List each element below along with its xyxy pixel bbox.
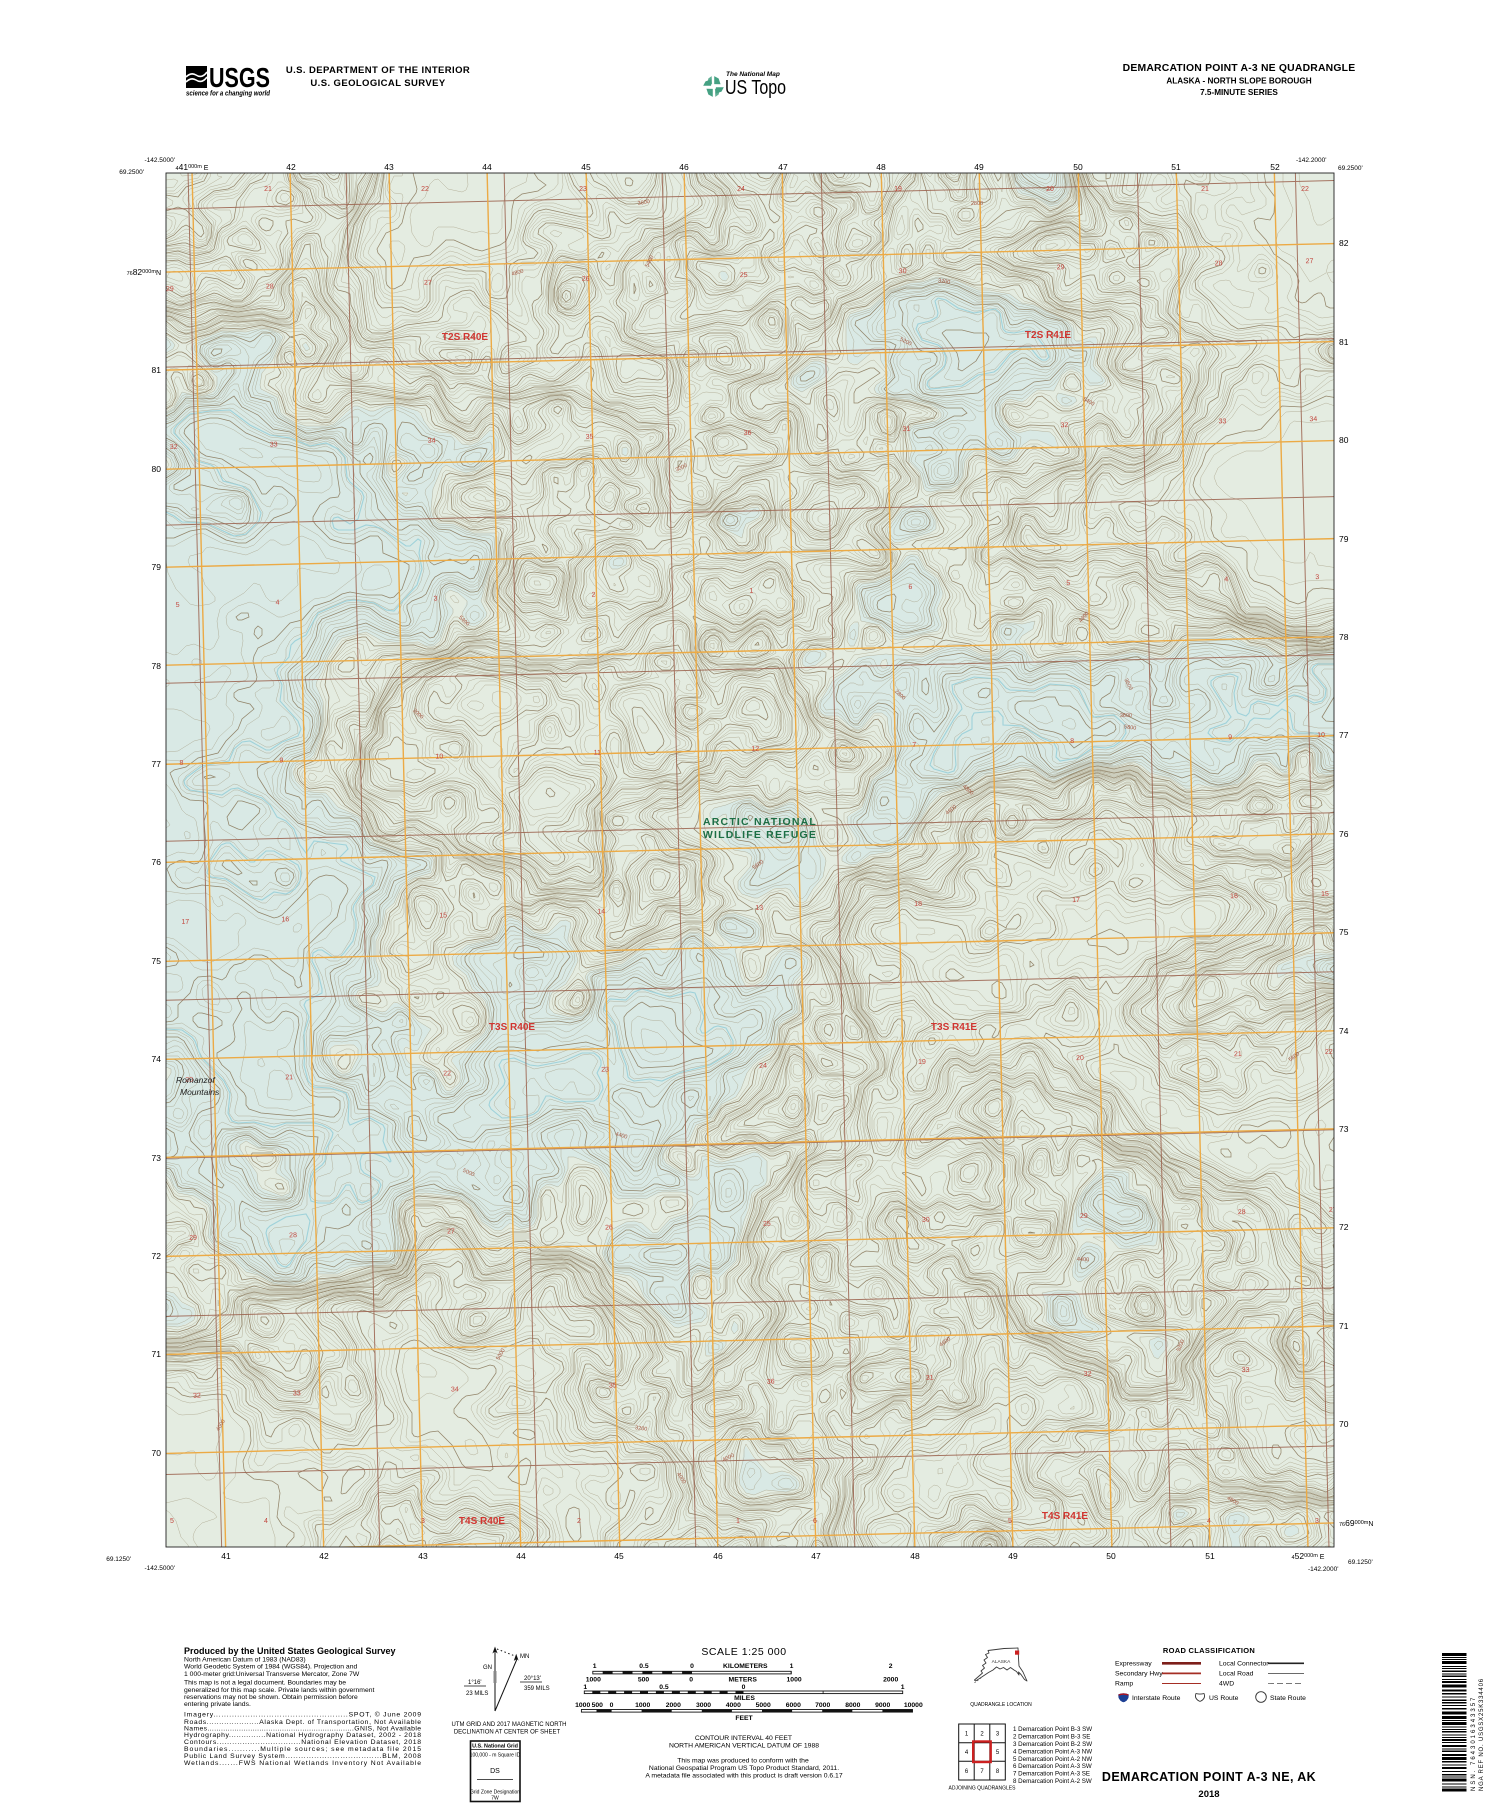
svg-text:3600: 3600 [1120, 713, 1132, 719]
svg-text:1 000-meter grid:Universal Tra: 1 000-meter grid:Universal Transverse Me… [184, 1671, 360, 1678]
svg-text:75: 75 [152, 956, 162, 966]
svg-text:17: 17 [1072, 897, 1080, 904]
svg-text:34: 34 [428, 438, 436, 445]
svg-text:11: 11 [594, 750, 602, 757]
svg-text:69.1250': 69.1250' [1348, 1559, 1373, 1566]
svg-text:77: 77 [152, 759, 162, 769]
svg-text:Expressway: Expressway [1115, 1661, 1152, 1668]
svg-text:34: 34 [451, 1386, 459, 1393]
svg-text:70: 70 [152, 1448, 162, 1458]
svg-text:33: 33 [270, 441, 278, 448]
svg-text:80: 80 [1339, 435, 1349, 445]
svg-text:32: 32 [1084, 1371, 1092, 1378]
svg-text:46: 46 [713, 1551, 723, 1561]
svg-text:6 Demarcation Point A-3 SW: 6 Demarcation Point A-3 SW [1013, 1763, 1092, 1770]
svg-text:Wetlands.......FWS National: Wetlands.......FWS National Wetlands Inv… [184, 1760, 421, 1767]
svg-text:17: 17 [181, 919, 189, 926]
svg-text:2 Demarcation Point B-3 SE: 2 Demarcation Point B-3 SE [1013, 1734, 1090, 1741]
svg-text:0.5: 0.5 [659, 1684, 669, 1691]
svg-text:US Topo: US Topo [725, 76, 786, 99]
svg-text:This map is not a legal docume: This map is not a legal document. Bounda… [184, 1680, 346, 1687]
svg-text:69.1250': 69.1250' [106, 1556, 131, 1563]
svg-text:U.S. DEPARTMENT OF THE INTERIO: U.S. DEPARTMENT OF THE INTERIOR [286, 65, 470, 76]
svg-text:8 Demarcation Point A-2 SW: 8 Demarcation Point A-2 SW [1013, 1778, 1092, 1785]
svg-text:48: 48 [876, 162, 886, 172]
svg-text:1000: 1000 [787, 1677, 802, 1684]
svg-text:22: 22 [1301, 186, 1309, 193]
svg-text:8: 8 [179, 760, 183, 767]
svg-text:33: 33 [1242, 1367, 1250, 1374]
svg-text:5000: 5000 [756, 1702, 771, 1709]
svg-text:44: 44 [482, 162, 492, 172]
svg-text:50: 50 [1106, 1551, 1116, 1561]
svg-text:7: 7 [912, 742, 916, 749]
svg-text:5: 5 [1066, 580, 1070, 587]
svg-text:-142.5000': -142.5000' [144, 157, 175, 164]
svg-text:3: 3 [433, 596, 437, 603]
svg-text:NGA REF NO. USGSX25K334406: NGA REF NO. USGSX25K334406 [1479, 1678, 1485, 1791]
svg-text:29: 29 [166, 286, 174, 293]
svg-text:20°13': 20°13' [524, 1676, 541, 1682]
svg-text:3: 3 [1315, 1518, 1319, 1525]
svg-text:50: 50 [1073, 162, 1083, 172]
svg-text:13: 13 [755, 905, 763, 912]
svg-text:28: 28 [1215, 260, 1223, 267]
svg-text:6: 6 [908, 584, 912, 591]
svg-text:3 Demarcation Point B-2 SW: 3 Demarcation Point B-2 SW [1013, 1741, 1092, 1748]
svg-text:ARCTIC NATIONAL: ARCTIC NATIONAL [703, 816, 817, 828]
svg-text:76: 76 [1339, 829, 1349, 839]
svg-text:72: 72 [152, 1251, 162, 1261]
svg-text:6000: 6000 [786, 1702, 801, 1709]
svg-text:2: 2 [889, 1663, 893, 1670]
svg-text:DS: DS [490, 1768, 500, 1775]
svg-text:31: 31 [903, 426, 911, 433]
svg-text:6: 6 [813, 1518, 817, 1525]
svg-text:T3S R40E: T3S R40E [489, 1022, 535, 1033]
svg-text:This map was produced to confo: This map was produced to conform with th… [677, 1758, 809, 1765]
svg-text:generalized for this map scale: generalized for this map scale. Private … [184, 1687, 375, 1694]
svg-text:1 Demarcation Point B-3 SW: 1 Demarcation Point B-3 SW [1013, 1726, 1092, 1733]
svg-text:34: 34 [1309, 416, 1317, 423]
svg-text:28: 28 [1238, 1209, 1246, 1216]
svg-text:2: 2 [577, 1518, 581, 1525]
svg-text:7 Demarcation Point A-3 SE: 7 Demarcation Point A-3 SE [1013, 1771, 1090, 1778]
svg-text:9: 9 [1228, 734, 1232, 741]
svg-text:science for a changing world: science for a changing world [186, 91, 271, 98]
svg-text:23 MILS: 23 MILS [466, 1691, 488, 1697]
svg-text:43: 43 [418, 1551, 428, 1561]
svg-text:49: 49 [1008, 1551, 1018, 1561]
svg-text:27: 27 [424, 280, 432, 287]
svg-text:74: 74 [152, 1054, 162, 1064]
svg-text:U.S. GEOLOGICAL SURVEY: U.S. GEOLOGICAL SURVEY [310, 78, 445, 89]
svg-text:71: 71 [152, 1349, 162, 1359]
svg-text:4WD: 4WD [1219, 1681, 1234, 1688]
svg-text:73: 73 [152, 1153, 162, 1163]
svg-text:21: 21 [1201, 186, 1209, 193]
svg-text:46: 46 [679, 162, 689, 172]
svg-text:12: 12 [751, 746, 759, 753]
svg-text:2000: 2000 [666, 1702, 681, 1709]
svg-text:21: 21 [264, 186, 272, 193]
svg-text:CONTOUR INTERVAL 40 FEET: CONTOUR INTERVAL 40 FEET [695, 1735, 792, 1742]
svg-text:9: 9 [279, 757, 283, 764]
svg-text:1°16': 1°16' [468, 1680, 482, 1686]
svg-text:Local Connector: Local Connector [1219, 1661, 1269, 1668]
svg-text:1: 1 [736, 1518, 740, 1525]
svg-text:100,000 - m Square ID: 100,000 - m Square ID [470, 1753, 521, 1759]
svg-text:UTM GRID AND 2017 MAGNETIC NOR: UTM GRID AND 2017 MAGNETIC NORTH [452, 1722, 567, 1728]
svg-text:SCALE 1:25 000: SCALE 1:25 000 [701, 1646, 786, 1658]
svg-text:1: 1 [790, 1663, 794, 1670]
svg-text:-142.2000': -142.2000' [1308, 1566, 1339, 1573]
svg-text:2018: 2018 [1198, 1789, 1219, 1800]
svg-text:0.5: 0.5 [639, 1663, 649, 1670]
svg-text:5: 5 [1008, 1518, 1012, 1525]
svg-text:DEMARCATION POINT A-3 NE QUADR: DEMARCATION POINT A-3 NE QUADRANGLE [1123, 63, 1356, 74]
svg-text:1000: 1000 [586, 1677, 601, 1684]
svg-text:2: 2 [591, 592, 595, 599]
svg-text:4: 4 [1224, 576, 1228, 583]
svg-text:20: 20 [1046, 186, 1054, 193]
svg-text:42: 42 [319, 1551, 329, 1561]
svg-text:32: 32 [170, 444, 178, 451]
svg-text:entering private lands.: entering private lands. [184, 1701, 251, 1708]
svg-text:U.S. National Grid: U.S. National Grid [472, 1744, 518, 1750]
svg-text:78: 78 [1339, 632, 1349, 642]
svg-text:36: 36 [744, 430, 752, 437]
svg-text:-142.5000': -142.5000' [144, 1565, 175, 1572]
svg-text:41: 41 [221, 1551, 231, 1561]
svg-text:29: 29 [189, 1235, 197, 1242]
svg-text:69.2500': 69.2500' [119, 169, 144, 176]
svg-text:1000: 1000 [575, 1702, 590, 1709]
svg-text:43: 43 [384, 162, 394, 172]
svg-text:79: 79 [1339, 534, 1349, 544]
svg-text:ADJOINING QUADRANGLES: ADJOINING QUADRANGLES [949, 1786, 1017, 1792]
svg-text:KILOMETERS: KILOMETERS [723, 1663, 768, 1670]
svg-text:ALASKA - NORTH SLOPE BOROUGH: ALASKA - NORTH SLOPE BOROUGH [1166, 77, 1311, 86]
svg-text:QUADRANGLE LOCATION: QUADRANGLE LOCATION [970, 1702, 1032, 1708]
svg-text:44: 44 [516, 1551, 526, 1561]
svg-text:7.5-MINUTE SERIES: 7.5-MINUTE SERIES [1200, 88, 1278, 97]
svg-text:35: 35 [586, 434, 594, 441]
svg-text:76: 76 [152, 857, 162, 867]
svg-text:52: 52 [1270, 162, 1280, 172]
svg-text:T2S R41E: T2S R41E [1025, 330, 1071, 341]
svg-text:26: 26 [582, 276, 590, 283]
svg-text:0: 0 [742, 1684, 746, 1691]
svg-text:21: 21 [285, 1074, 293, 1081]
svg-text:National Geospatial Program US: National Geospatial Program US Topo Prod… [649, 1765, 839, 1772]
svg-text:19: 19 [918, 1059, 926, 1066]
svg-text:T4S R41E: T4S R41E [1042, 1511, 1088, 1522]
svg-text:14: 14 [597, 909, 605, 916]
svg-text:5: 5 [176, 602, 180, 609]
svg-text:USGS: USGS [209, 62, 270, 93]
svg-text:72: 72 [1339, 1222, 1349, 1232]
svg-text:47: 47 [778, 162, 788, 172]
svg-text:ROAD CLASSIFICATION: ROAD CLASSIFICATION [1163, 1646, 1255, 1655]
svg-text:359 MILS: 359 MILS [524, 1686, 550, 1692]
svg-text:20: 20 [1076, 1055, 1084, 1062]
svg-text:3: 3 [1315, 574, 1319, 581]
svg-text:32: 32 [1060, 422, 1068, 429]
svg-text:Mountains: Mountains [180, 1087, 220, 1097]
svg-text:33: 33 [1218, 418, 1226, 425]
svg-text:24: 24 [737, 186, 745, 193]
svg-text:81: 81 [152, 365, 162, 375]
svg-text:WILDLIFE REFUGE: WILDLIFE REFUGE [703, 829, 817, 841]
svg-text:10000: 10000 [904, 1702, 923, 1709]
svg-text:2000: 2000 [883, 1677, 898, 1684]
svg-text:23: 23 [601, 1067, 609, 1074]
svg-text:45: 45 [581, 162, 591, 172]
svg-text:1: 1 [583, 1684, 587, 1691]
svg-text:77: 77 [1339, 730, 1349, 740]
svg-text:71: 71 [1339, 1321, 1349, 1331]
svg-text:15: 15 [1321, 891, 1329, 898]
svg-text:48: 48 [910, 1551, 920, 1561]
svg-text:DEMARCATION POINT A-3 NE, AK: DEMARCATION POINT A-3 NE, AK [1102, 1770, 1316, 1784]
svg-text:Imagery.......................: Imagery.................................… [184, 1711, 421, 1719]
svg-text:7000: 7000 [815, 1702, 830, 1709]
svg-text:ALASKA: ALASKA [992, 1659, 1011, 1665]
svg-text:19: 19 [894, 186, 902, 193]
svg-text:69.2500': 69.2500' [1338, 165, 1363, 172]
svg-text:State Route: State Route [1270, 1695, 1306, 1702]
svg-text:30: 30 [899, 268, 907, 275]
svg-text:51: 51 [1205, 1551, 1215, 1561]
svg-text:33: 33 [293, 1390, 301, 1397]
svg-text:9000: 9000 [875, 1702, 890, 1709]
svg-text:A metadata file associated wit: A metadata file associated with this pro… [645, 1773, 842, 1780]
svg-text:31: 31 [926, 1375, 934, 1382]
svg-text:22: 22 [421, 186, 429, 193]
svg-text:0: 0 [610, 1702, 614, 1709]
svg-text:22: 22 [1325, 1049, 1333, 1056]
svg-text:1: 1 [901, 1684, 905, 1691]
svg-text:15: 15 [439, 912, 447, 919]
svg-text:500: 500 [592, 1702, 604, 1709]
svg-text:21: 21 [1234, 1051, 1242, 1058]
svg-text:World Geodetic System of 1984: World Geodetic System of 1984 (WGS84). P… [184, 1664, 357, 1671]
svg-text:27: 27 [1306, 258, 1314, 265]
svg-text:500: 500 [638, 1677, 650, 1684]
svg-text:4: 4 [264, 1518, 268, 1525]
svg-text:5 Demarcation Point A-2 NW: 5 Demarcation Point A-2 NW [1013, 1756, 1092, 1763]
svg-text:74: 74 [1339, 1026, 1349, 1036]
svg-text:Ramp: Ramp [1115, 1681, 1133, 1688]
svg-text:29: 29 [1057, 264, 1065, 271]
svg-text:Local Road: Local Road [1219, 1671, 1254, 1678]
svg-text:45: 45 [614, 1551, 624, 1561]
svg-text:47: 47 [811, 1551, 821, 1561]
svg-text:Interstate Route: Interstate Route [1132, 1695, 1181, 1702]
svg-text:42: 42 [286, 162, 296, 172]
svg-text:28: 28 [266, 283, 274, 290]
svg-text:82: 82 [1339, 238, 1349, 248]
svg-text:T4S R40E: T4S R40E [459, 1516, 505, 1527]
svg-text:36: 36 [767, 1379, 775, 1386]
svg-text:75: 75 [1339, 927, 1349, 937]
svg-text:-142.2000': -142.2000' [1296, 157, 1327, 164]
svg-text:2800: 2800 [971, 201, 983, 207]
svg-text:25: 25 [763, 1221, 771, 1228]
svg-text:T2S R40E: T2S R40E [442, 332, 488, 343]
svg-text:10: 10 [435, 753, 443, 760]
svg-text:NSN. 7643016343357: NSN. 7643016343357 [1471, 1696, 1477, 1791]
svg-text:North American Datum of 1983 (: North American Datum of 1983 (NAD83) [184, 1657, 306, 1664]
svg-text:Secondary Hwy: Secondary Hwy [1115, 1671, 1163, 1678]
svg-text:7W: 7W [491, 1796, 499, 1802]
svg-text:16: 16 [1230, 893, 1238, 900]
svg-text:1: 1 [749, 588, 753, 595]
svg-text:29: 29 [1080, 1213, 1088, 1220]
svg-text:Boundaries...........Multiple: Boundaries...........Multiple sources; s… [184, 1746, 421, 1753]
svg-text:22: 22 [443, 1070, 451, 1077]
svg-text:30: 30 [922, 1217, 930, 1224]
svg-text:70: 70 [1339, 1419, 1349, 1429]
svg-text:1000: 1000 [635, 1702, 650, 1709]
svg-text:DECLINATION AT CENTER OF SHEET: DECLINATION AT CENTER OF SHEET [454, 1730, 561, 1736]
svg-text:4: 4 [276, 599, 280, 606]
svg-text:reservations may not be shown.: reservations may not be shown. Obtain pe… [184, 1694, 358, 1701]
svg-text:4 Demarcation Point A-3 NW: 4 Demarcation Point A-3 NW [1013, 1748, 1092, 1755]
svg-text:Romanzof: Romanzof [176, 1075, 216, 1085]
svg-text:8000: 8000 [845, 1702, 860, 1709]
svg-text:1: 1 [593, 1663, 597, 1670]
svg-text:16: 16 [281, 916, 289, 923]
svg-text:FEET: FEET [735, 1715, 753, 1722]
svg-text:35: 35 [609, 1382, 617, 1389]
svg-text:Produced by the United States: Produced by the United States Geological… [184, 1646, 396, 1656]
svg-text:4: 4 [1207, 1518, 1211, 1525]
svg-text:79: 79 [152, 562, 162, 572]
svg-text:49: 49 [974, 162, 984, 172]
svg-text:25: 25 [740, 272, 748, 279]
svg-text:51: 51 [1171, 162, 1181, 172]
svg-text:T3S R41E: T3S R41E [931, 1022, 977, 1033]
svg-text:MILES: MILES [734, 1695, 755, 1702]
svg-text:Contours......................: Contours................................… [184, 1739, 421, 1746]
svg-text:US Route: US Route [1209, 1695, 1239, 1702]
svg-text:GN: GN [483, 1665, 492, 1671]
svg-text:23: 23 [579, 186, 587, 193]
svg-text:80: 80 [152, 464, 162, 474]
svg-text:5: 5 [170, 1518, 174, 1525]
svg-text:27: 27 [447, 1228, 455, 1235]
svg-text:10: 10 [1317, 732, 1325, 739]
svg-text:24: 24 [759, 1063, 767, 1070]
svg-text:METERS: METERS [729, 1677, 758, 1684]
svg-text:32: 32 [193, 1393, 201, 1400]
svg-text:NORTH AMERICAN VERTICAL DATUM: NORTH AMERICAN VERTICAL DATUM OF 1988 [669, 1743, 819, 1750]
svg-text:18: 18 [914, 901, 922, 908]
svg-text:73: 73 [1339, 1124, 1349, 1134]
svg-text:8: 8 [1070, 738, 1074, 745]
svg-text:3: 3 [421, 1518, 425, 1525]
svg-text:0: 0 [690, 1663, 694, 1670]
svg-text:MN: MN [520, 1654, 529, 1660]
svg-text:4400: 4400 [1077, 1257, 1089, 1263]
svg-text:78: 78 [152, 661, 162, 671]
svg-text:4000: 4000 [726, 1702, 741, 1709]
svg-text:81: 81 [1339, 337, 1349, 347]
svg-text:3000: 3000 [696, 1702, 711, 1709]
svg-text:28: 28 [289, 1232, 297, 1239]
svg-text:26: 26 [605, 1224, 613, 1231]
svg-text:0: 0 [689, 1677, 693, 1684]
